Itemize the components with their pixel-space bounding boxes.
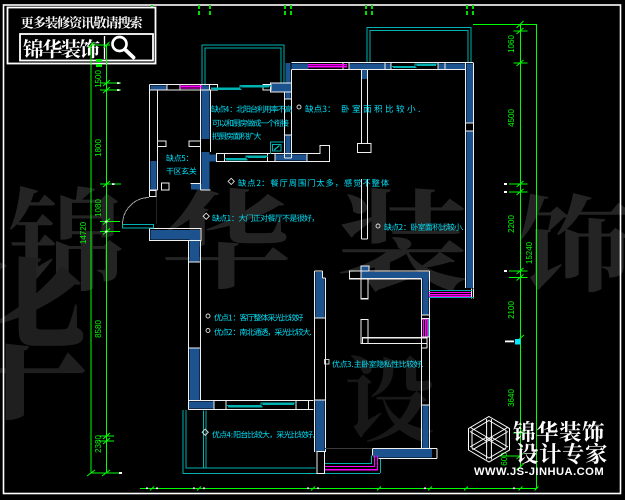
svg-text:3640: 3640 [507,389,516,407]
svg-text:600: 600 [500,452,509,466]
svg-text:2380: 2380 [94,435,103,453]
svg-text:1500: 1500 [94,70,103,88]
svg-text:4500: 4500 [507,109,516,127]
svg-text:WWW.JS-JINHUA.COM: WWW.JS-JINHUA.COM [474,466,604,478]
svg-text:2100: 2100 [507,301,516,319]
svg-text:1080: 1080 [94,199,103,217]
svg-text:2200: 2200 [507,215,516,233]
svg-text:15240: 15240 [525,241,534,264]
svg-text:14720: 14720 [79,221,88,244]
svg-text:1800: 1800 [94,139,103,157]
svg-text:1060: 1060 [507,35,516,53]
svg-text:8580: 8580 [94,320,103,338]
